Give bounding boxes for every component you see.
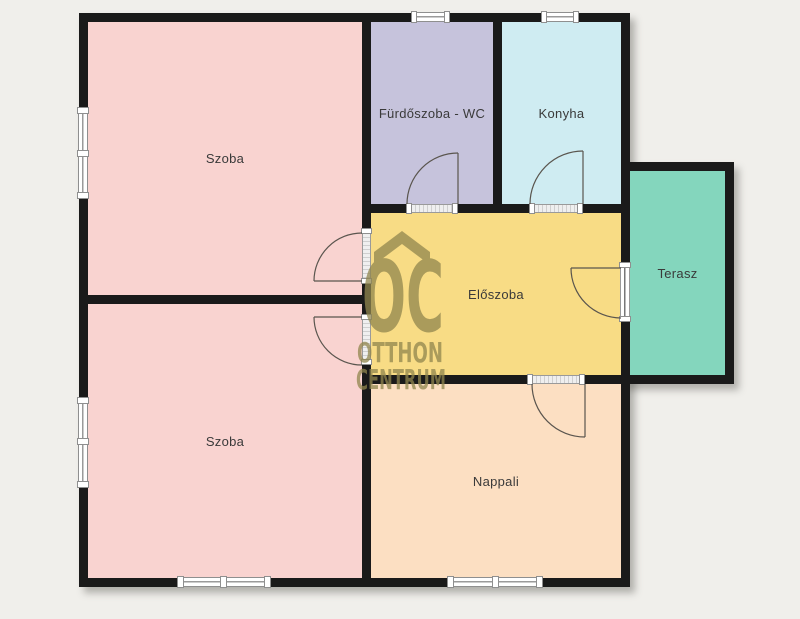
window-cap [77,438,89,445]
room-nappali: Nappali [371,384,621,578]
door-cap [406,203,412,214]
window-cap [541,11,547,23]
room-label-terasz: Terasz [657,266,697,281]
room-label-nappali: Nappali [473,474,519,489]
wall-eloszoba-bottom-1 [362,375,528,384]
door-jamb-nappali [528,375,585,384]
room-label-furdoszoba-wc: Fürdőszoba - WC [379,106,485,121]
door-cap [361,314,372,320]
room-terasz: Terasz [630,171,725,375]
wall-under-bath-2 [458,204,530,213]
wall-center-vertical-3 [362,365,371,587]
wall-under-kitchen [583,204,630,213]
room-eloszoba: Előszoba [371,213,621,375]
room-label-eloszoba: Előszoba [468,287,524,302]
door-jamb-furdoszoba [407,204,458,213]
window-cap [77,397,89,404]
wall-terrace-right [725,162,734,384]
window-cap [536,576,543,588]
window-cap [77,481,89,488]
door-cap [361,359,372,365]
door-cap [452,203,458,214]
wall-terrace-top [621,162,734,171]
wall-center-vertical-1 [362,13,371,229]
wall-outer-right-lower [621,320,630,587]
door-jamb-terasz [620,263,630,322]
window-cap [220,576,227,588]
window-cap [264,576,271,588]
door-cap [579,374,585,385]
wall-outer-bottom [79,578,630,587]
room-konyha: Konyha [502,22,621,204]
room-label-konyha: Konyha [539,106,585,121]
window-cap [411,11,417,23]
door-cap [619,316,631,322]
room-furdoszoba-wc: Fürdőszoba - WC [371,22,493,204]
window-cap [444,11,450,23]
room-label-szoba-bottom: Szoba [206,434,244,449]
window-cap [77,107,89,114]
wall-bath-kitchen-divider [493,13,502,213]
door-cap [619,262,631,268]
room-szoba-bottom: Szoba [88,304,362,578]
room-label-szoba-top: Szoba [206,151,244,166]
wall-under-bath-1 [362,204,407,213]
window-cap [492,576,499,588]
window-cap [77,192,89,199]
window-cap [447,576,454,588]
door-jamb-konyha [530,204,583,213]
floor-plan: Szoba Fürdőszoba - WC Konyha Előszoba Te… [0,0,800,619]
window-cap [77,150,89,157]
wall-terrace-bottom [621,375,734,384]
door-cap [361,228,372,234]
door-cap [361,278,372,284]
door-cap [527,374,533,385]
wall-outer-right-upper [621,13,630,265]
wall-szoba-divider [79,295,371,304]
window-cap [573,11,579,23]
door-jamb-szoba-top [362,229,371,283]
door-cap [529,203,535,214]
room-szoba-top: Szoba [88,22,362,295]
door-jamb-szoba-bottom [362,315,371,365]
door-cap [577,203,583,214]
window-cap [177,576,184,588]
